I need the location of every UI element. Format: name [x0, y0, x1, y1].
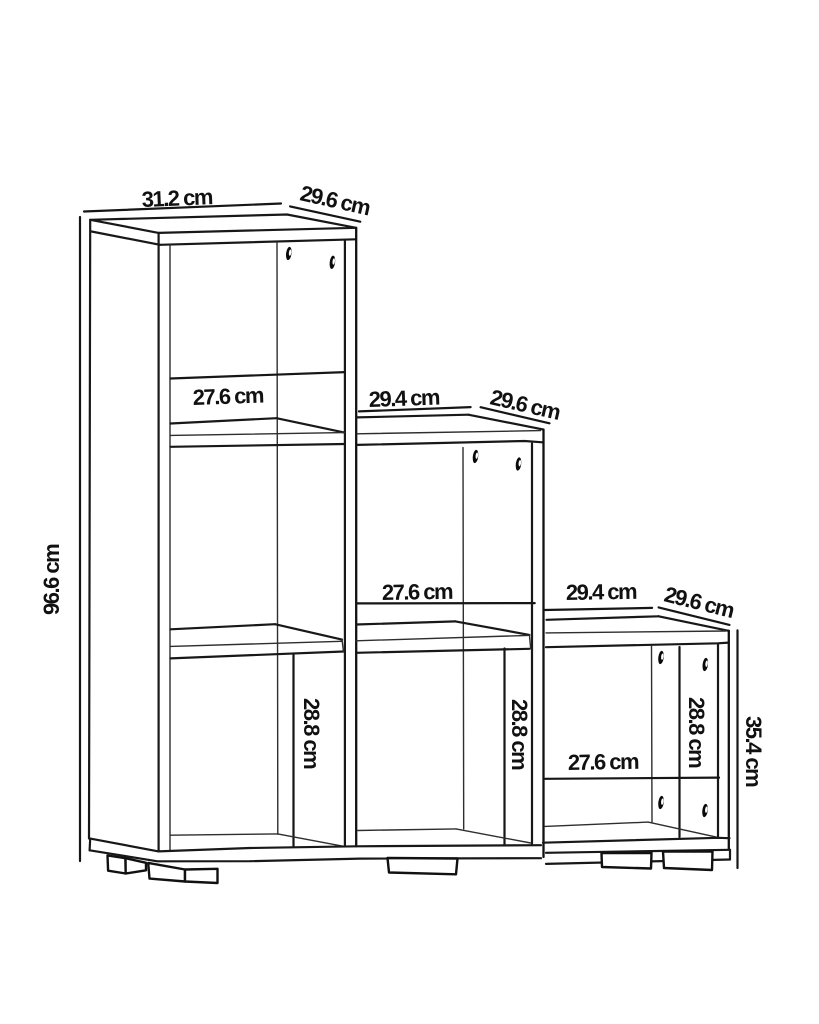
svg-text:31.2 cm: 31.2 cm: [141, 184, 213, 212]
svg-text:29.4 cm: 29.4 cm: [368, 385, 440, 412]
svg-text:28.8 cm: 28.8 cm: [684, 697, 709, 768]
svg-text:27.6 cm: 27.6 cm: [568, 749, 640, 775]
svg-text:28.8 cm: 28.8 cm: [299, 698, 324, 769]
svg-text:29.4 cm: 29.4 cm: [566, 579, 638, 605]
svg-text:96.6 cm: 96.6 cm: [39, 544, 64, 615]
svg-text:27.6 cm: 27.6 cm: [192, 383, 264, 410]
svg-text:28.8 cm: 28.8 cm: [507, 699, 532, 770]
svg-text:27.6 cm: 27.6 cm: [382, 579, 454, 605]
svg-text:35.4 cm: 35.4 cm: [741, 716, 766, 787]
